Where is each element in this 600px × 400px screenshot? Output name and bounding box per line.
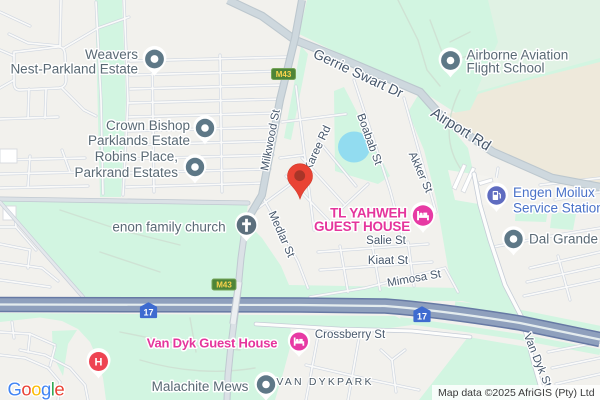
svg-text:enon family church: enon family church [112, 220, 225, 235]
svg-text:Crown Bishop: Crown Bishop [106, 118, 190, 133]
svg-text:17: 17 [143, 308, 153, 318]
svg-text:Service Station: Service Station [513, 201, 600, 216]
svg-text:GUEST HOUSE: GUEST HOUSE [314, 219, 410, 234]
svg-text:Engen Moilux: Engen Moilux [513, 185, 595, 200]
svg-text:Parkrand Estates: Parkrand Estates [74, 165, 178, 180]
svg-text:Crossberry St: Crossberry St [315, 329, 386, 341]
svg-text:Weavers: Weavers [85, 47, 138, 62]
svg-text:Map data ©2025 AfriGIS (Pty) L: Map data ©2025 AfriGIS (Pty) Ltd [438, 387, 595, 399]
svg-text:Van Dyk Guest House: Van Dyk Guest House [147, 336, 278, 351]
svg-text:Dal Grande: Dal Grande [529, 232, 598, 247]
svg-text:Robins Place,: Robins Place, [95, 149, 178, 164]
svg-text:17: 17 [417, 312, 427, 322]
svg-text:Google: Google [8, 379, 65, 400]
svg-text:Flight School: Flight School [467, 61, 545, 76]
svg-text:M43: M43 [276, 70, 292, 79]
svg-text:Salie St: Salie St [366, 235, 406, 247]
svg-text:Kiaat St: Kiaat St [368, 255, 409, 267]
svg-text:H: H [95, 357, 103, 369]
svg-text:M43: M43 [216, 281, 232, 290]
svg-text:Parklands Estate: Parklands Estate [88, 133, 190, 148]
svg-text:Nest-Parkland Estate: Nest-Parkland Estate [10, 62, 138, 77]
svg-text:Malachite Mews: Malachite Mews [152, 379, 249, 394]
svg-text:VAN DYKPARK: VAN DYKPARK [276, 376, 373, 388]
